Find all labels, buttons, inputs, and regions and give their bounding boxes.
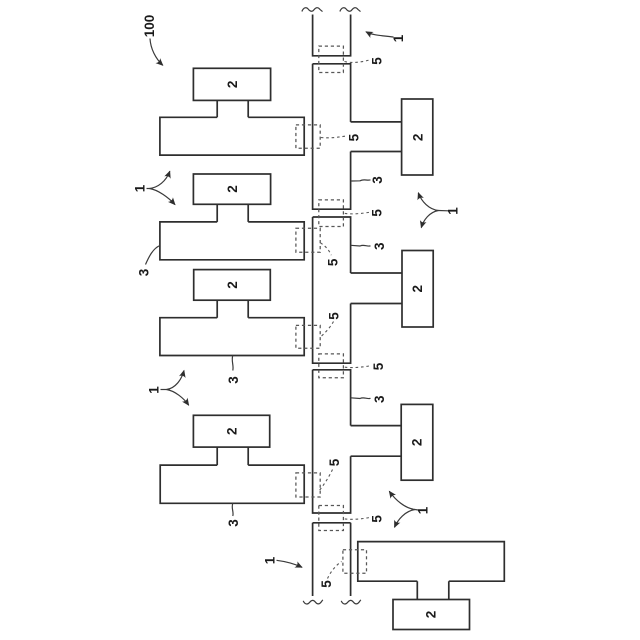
svg-text:1: 1 <box>133 184 148 192</box>
svg-text:5: 5 <box>326 258 341 266</box>
svg-text:2: 2 <box>410 134 425 142</box>
svg-text:2: 2 <box>225 81 240 89</box>
svg-text:2: 2 <box>225 281 240 289</box>
svg-text:1: 1 <box>263 556 278 564</box>
svg-text:3: 3 <box>372 395 387 403</box>
svg-text:3: 3 <box>372 242 387 250</box>
svg-text:5: 5 <box>369 57 384 65</box>
svg-text:1: 1 <box>391 34 406 42</box>
svg-text:2: 2 <box>225 185 240 193</box>
svg-text:1: 1 <box>147 386 162 394</box>
svg-text:5: 5 <box>370 209 385 217</box>
svg-text:5: 5 <box>319 580 334 588</box>
svg-text:2: 2 <box>410 285 425 293</box>
svg-text:2: 2 <box>410 439 425 447</box>
svg-text:5: 5 <box>327 312 342 320</box>
svg-text:100: 100 <box>142 15 157 38</box>
svg-text:3: 3 <box>136 268 151 276</box>
svg-text:2: 2 <box>424 611 439 619</box>
svg-text:5: 5 <box>370 515 385 523</box>
svg-text:3: 3 <box>226 376 241 384</box>
svg-text:5: 5 <box>371 362 386 370</box>
svg-text:3: 3 <box>226 519 241 527</box>
svg-text:3: 3 <box>370 176 385 184</box>
svg-text:5: 5 <box>327 458 342 466</box>
svg-text:5: 5 <box>347 133 362 141</box>
svg-text:2: 2 <box>225 427 240 435</box>
